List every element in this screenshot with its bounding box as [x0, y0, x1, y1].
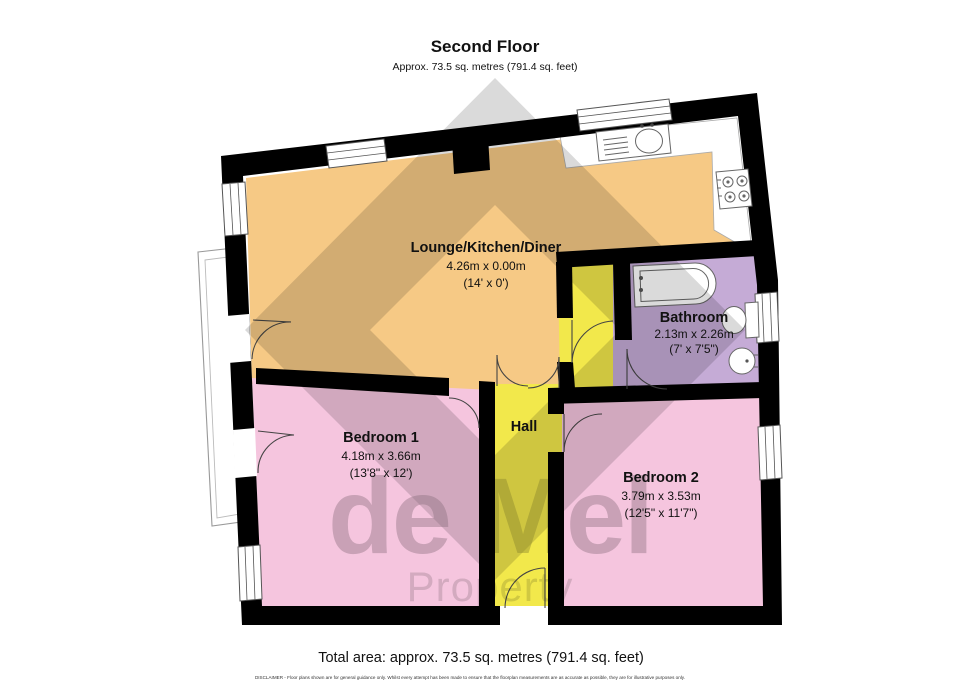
watermark-text-2: Property: [407, 563, 574, 610]
label-bedroom1-dims-m: 4.18m x 3.66m: [341, 449, 420, 463]
window-lounge-left: [222, 182, 248, 236]
disclaimer-text: DISCLAIMER - Floor plans shown are for g…: [255, 675, 685, 680]
label-bathroom-dims-ft: (7' x 7'5"): [669, 342, 719, 356]
window-bedroom1: [238, 545, 262, 601]
label-bathroom-dims-m: 2.13m x 2.26m: [654, 327, 733, 341]
label-hall-name: Hall: [511, 419, 538, 435]
page-subtitle: Approx. 73.5 sq. metres (791.4 sq. feet): [392, 61, 577, 73]
kitchen-hob: [716, 169, 752, 209]
window-bedroom2: [758, 425, 782, 480]
label-lounge-dims-m: 4.26m x 0.00m: [446, 259, 525, 273]
label-bedroom2-name: Bedroom 2: [623, 470, 699, 486]
label-lounge-dims-ft: (14' x 0'): [463, 276, 508, 290]
label-lounge-name: Lounge/Kitchen/Diner: [411, 240, 562, 256]
label-bedroom1-dims-ft: (13'8" x 12'): [350, 466, 413, 480]
total-area-text: Total area: approx. 73.5 sq. metres (791…: [318, 650, 644, 666]
label-bedroom1-name: Bedroom 1: [343, 430, 419, 446]
floorplan-page: Second Floor Approx. 73.5 sq. metres (79…: [0, 0, 980, 690]
label-bedroom2-dims-ft: (12'5" x 11'7"): [625, 506, 698, 520]
opening-balcony-door: [233, 428, 257, 478]
floor-plan-svg: Second Floor Approx. 73.5 sq. metres (79…: [0, 0, 980, 690]
label-bedroom2-dims-m: 3.79m x 3.53m: [621, 489, 700, 503]
label-bathroom-name: Bathroom: [660, 310, 728, 326]
page-title: Second Floor: [431, 37, 540, 56]
opening-lounge-west: [226, 314, 251, 363]
